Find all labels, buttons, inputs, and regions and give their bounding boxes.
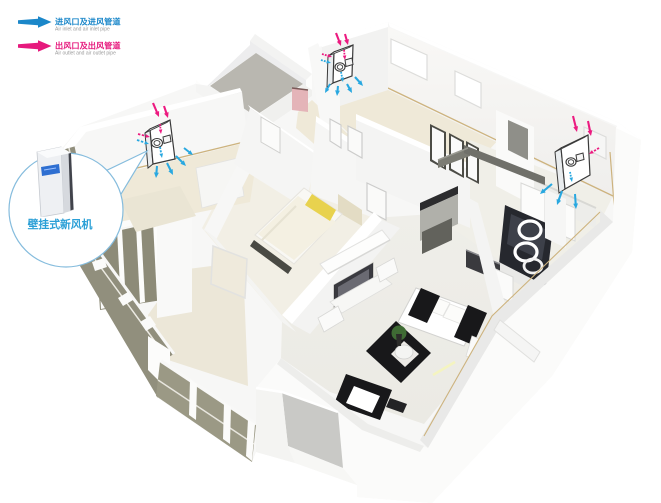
svg-text:壁挂式新风机: 壁挂式新风机	[28, 217, 93, 231]
svg-text:Air outlet and air outlet pipe: Air outlet and air outlet pipe	[55, 51, 116, 57]
svg-text:进风口及进风管道: 进风口及进风管道	[55, 17, 121, 27]
svg-text:Air inlet and air inlet pipe: Air inlet and air inlet pipe	[55, 27, 110, 33]
svg-text:出风口及出风管道: 出风口及出风管道	[55, 41, 121, 51]
